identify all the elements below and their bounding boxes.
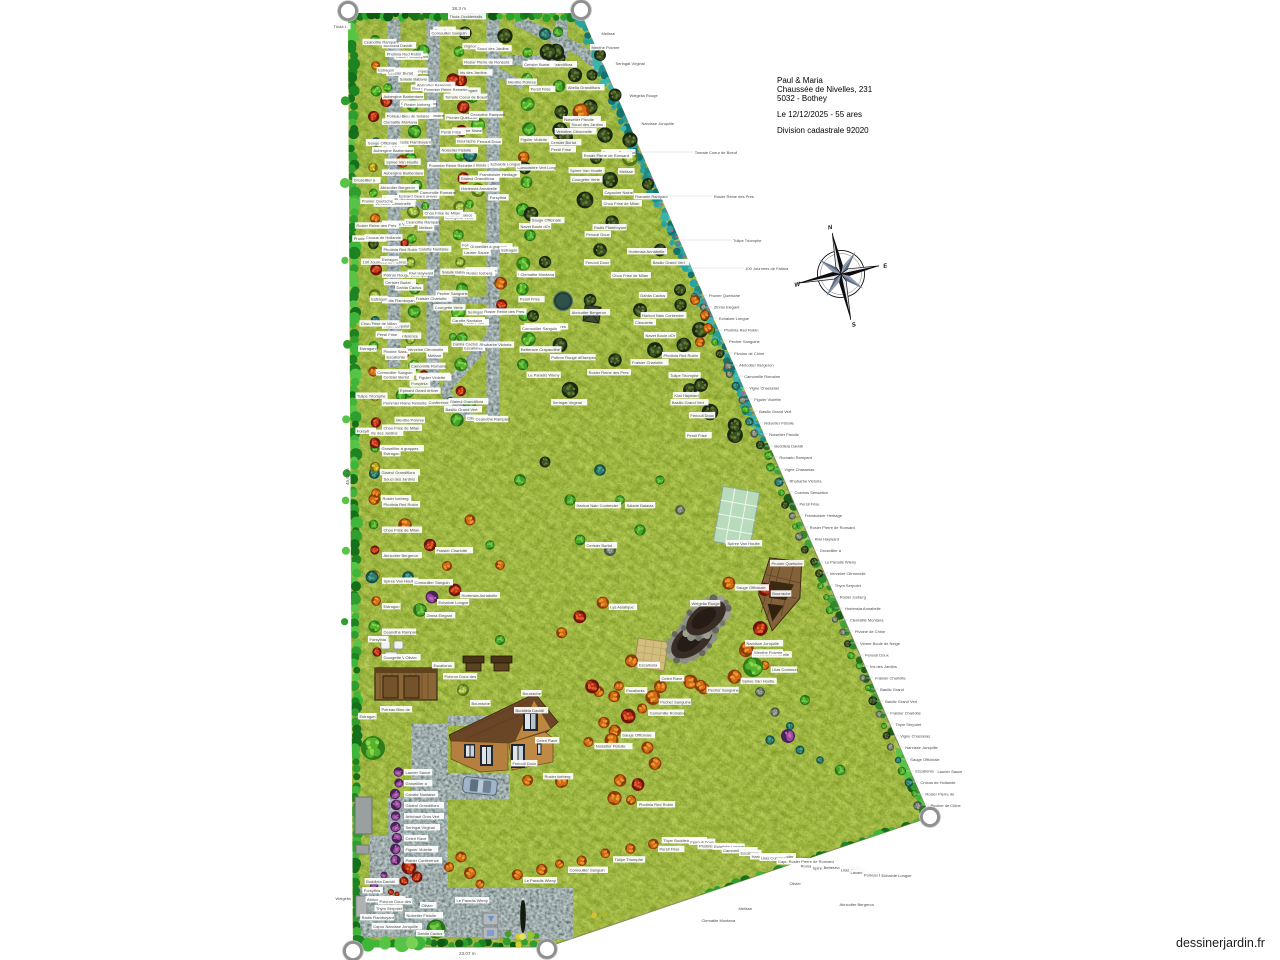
svg-text:Cornouiller Sanguin: Cornouiller Sanguin xyxy=(415,580,450,585)
svg-text:Fraisier Charlotte: Fraisier Charlotte xyxy=(437,548,468,553)
svg-text:Photinia Red Robin: Photinia Red Robin xyxy=(724,328,758,333)
svg-text:Abricotier Bergeron: Abricotier Bergeron xyxy=(384,553,418,558)
svg-text:Courgette Verte: Courgette Verte xyxy=(572,177,601,182)
svg-text:N: N xyxy=(828,225,834,232)
svg-text:Fraisier Charlotte: Fraisier Charlotte xyxy=(890,710,921,715)
svg-text:Capucine Naine: Capucine Naine xyxy=(605,190,634,195)
svg-text:Le Paradis Wieny: Le Paradis Wieny xyxy=(525,878,556,883)
svg-text:Rosier Reine des Pres: Rosier Reine des Pres xyxy=(589,370,629,375)
svg-text:Basilic Grand Vert: Basilic Grand Vert xyxy=(653,260,686,265)
svg-text:Spiree Van Houtte: Spiree Van Houtte xyxy=(742,679,775,684)
svg-text:Ceanothe Rampant: Ceanothe Rampant xyxy=(476,417,512,422)
svg-text:Radis Flamboyant: Radis Flamboyant xyxy=(362,915,395,920)
svg-text:Rosier Pierre de: Rosier Pierre de xyxy=(925,792,955,797)
svg-text:Ceanothe Rampant: Ceanothe Rampant xyxy=(470,112,506,117)
svg-text:Photinia Red Robin: Photinia Red Robin xyxy=(384,247,418,252)
svg-text:Dahlia Cactus: Dahlia Cactus xyxy=(418,931,443,936)
svg-text:Prunier Quetsche: Prunier Quetsche xyxy=(709,293,741,298)
svg-text:100 Journees de Fatima: 100 Journees de Fatima xyxy=(745,266,789,271)
svg-text:Laurier Sauce: Laurier Sauce xyxy=(464,250,490,255)
svg-text:Weigelia: Weigelia xyxy=(336,896,352,901)
svg-text:Ceanothe Rampant: Ceanothe Rampant xyxy=(406,220,442,225)
svg-text:Prunier Quetsche: Prunier Quetsche xyxy=(772,561,804,566)
svg-text:Menthe Poivree: Menthe Poivree xyxy=(396,418,425,423)
svg-text:Pivoine de Chine: Pivoine de Chine xyxy=(734,351,765,356)
svg-text:Forsythia: Forsythia xyxy=(490,195,507,200)
svg-text:Aubergine Barbentane: Aubergine Barbentane xyxy=(384,94,425,99)
svg-text:Rosier Pierre de Ronsard: Rosier Pierre de Ronsard xyxy=(584,153,629,158)
svg-text:Photinia Red Robin: Photinia Red Robin xyxy=(387,52,421,57)
svg-text:Buddleia Davidii: Buddleia Davidii xyxy=(516,708,545,713)
svg-text:Persil Frise: Persil Frise xyxy=(551,147,572,152)
svg-text:Cerisier Burlat: Cerisier Burlat xyxy=(551,140,577,145)
svg-text:Chou Frise de Milan: Chou Frise de Milan xyxy=(612,273,648,278)
svg-text:Melisse: Melisse xyxy=(602,31,616,36)
svg-text:Sauge Officinale: Sauge Officinale xyxy=(532,218,562,223)
svg-text:Basilic Grand Vert: Basilic Grand Vert xyxy=(446,407,479,412)
svg-text:23,07 m: 23,07 m xyxy=(459,951,476,956)
svg-text:Kiwi Hayward: Kiwi Hayward xyxy=(674,393,698,398)
svg-text:Basilic Grand Vert: Basilic Grand Vert xyxy=(759,409,792,414)
svg-text:Viorne Boule de Neige: Viorne Boule de Neige xyxy=(860,641,901,646)
svg-text:Tulipe Triomphe: Tulipe Triomphe xyxy=(670,373,699,378)
svg-text:Echalote Longue: Echalote Longue xyxy=(491,162,522,167)
svg-text:Abricotier Bergeron: Abricotier Bergeron xyxy=(840,902,874,907)
svg-text:Rosier Reine des Pres: Rosier Reine des Pres xyxy=(356,223,396,228)
svg-text:Camomille Romaine: Camomille Romaine xyxy=(411,364,448,369)
svg-text:Echalote Longue: Echalote Longue xyxy=(882,873,913,878)
svg-text:Estragon: Estragon xyxy=(382,257,398,262)
svg-text:Rhubarbe Victoria: Rhubarbe Victoria xyxy=(790,478,823,483)
svg-text:Carotte Nantaise: Carotte Nantaise xyxy=(452,318,483,323)
svg-text:Courgette Verte: Courgette Verte xyxy=(435,305,464,310)
svg-text:Concombre Vert Long: Concombre Vert Long xyxy=(517,165,556,170)
svg-text:Basilic Grand Vert: Basilic Grand Vert xyxy=(885,699,918,704)
svg-text:Groseillier a: Groseillier a xyxy=(820,548,842,553)
svg-text:S: S xyxy=(851,322,856,329)
svg-text:Sauge Officinale: Sauge Officinale xyxy=(622,733,652,738)
svg-text:Melisse: Melisse xyxy=(620,169,634,174)
svg-text:Tulipe Triomphe: Tulipe Triomphe xyxy=(615,857,644,862)
svg-text:Tomate Coeur de Boeuf: Tomate Coeur de Boeuf xyxy=(695,150,738,155)
svg-text:Clematite Montana: Clematite Montana xyxy=(850,618,884,623)
svg-text:Camomille Romaine: Camomille Romaine xyxy=(744,374,781,379)
svg-text:Camomille Romaine: Camomille Romaine xyxy=(650,710,687,715)
svg-text:Glaieul Grandiflora: Glaieul Grandiflora xyxy=(450,399,484,404)
svg-text:Cerisier Burlat: Cerisier Burlat xyxy=(587,543,613,548)
svg-text:Noisetier Fistulie: Noisetier Fistulie xyxy=(442,148,472,153)
svg-text:Prunier Quetsche: Prunier Quetsche xyxy=(362,199,394,204)
svg-text:Menthe Poivree: Menthe Poivree xyxy=(754,650,783,655)
svg-text:Persil Frise: Persil Frise xyxy=(800,502,821,507)
svg-text:Rosier Iceberg: Rosier Iceberg xyxy=(840,594,866,599)
svg-text:Tomate Coeur de Boeuf: Tomate Coeur de Boeuf xyxy=(445,94,488,99)
svg-text:Clematite Montana: Clematite Montana xyxy=(521,272,555,277)
svg-text:Seringat Virginal: Seringat Virginal xyxy=(616,61,645,66)
svg-text:Abelia Grandiflora: Abelia Grandiflora xyxy=(568,85,601,90)
svg-text:Figuier Violette: Figuier Violette xyxy=(419,375,446,380)
svg-text:Persil Frise: Persil Frise xyxy=(377,332,398,337)
svg-text:Salade Batavia: Salade Batavia xyxy=(400,77,428,82)
svg-text:Radis Flamboyant: Radis Flamboyant xyxy=(594,225,627,230)
svg-text:E: E xyxy=(883,263,889,270)
svg-text:Photinia Red Robin: Photinia Red Robin xyxy=(664,353,698,358)
svg-text:Noisetier Fistulie: Noisetier Fistulie xyxy=(769,432,799,437)
svg-text:Noisetier Fistulie: Noisetier Fistulie xyxy=(764,420,794,425)
svg-text:Pecher Sanguine: Pecher Sanguine xyxy=(660,699,691,704)
svg-text:Escallonia: Escallonia xyxy=(434,663,453,668)
svg-text:Olivier: Olivier xyxy=(422,903,434,908)
svg-text:Aubergine Barbentane: Aubergine Barbentane xyxy=(384,170,425,175)
svg-text:Abricotier Bergeron: Abricotier Bergeron xyxy=(572,310,606,315)
svg-text:Cornouiller Sanguin: Cornouiller Sanguin xyxy=(432,30,467,35)
svg-text:Buddleia Davidii: Buddleia Davidii xyxy=(774,444,803,449)
svg-text:Sauge Officinale: Sauge Officinale xyxy=(368,141,398,146)
svg-text:Hortensia Annabelle: Hortensia Annabelle xyxy=(462,593,499,598)
svg-text:Salade Batavia: Salade Batavia xyxy=(627,503,655,508)
svg-text:Glaieul Grandiflora: Glaieul Grandiflora xyxy=(382,470,416,475)
svg-text:Pommier Reine Reinette: Pommier Reine Reinette xyxy=(383,401,427,406)
svg-text:Laurier Sauce: Laurier Sauce xyxy=(406,770,432,775)
svg-text:Ceanothe Rampant: Ceanothe Rampant xyxy=(384,629,420,634)
svg-text:Persil Frise: Persil Frise xyxy=(660,847,681,852)
svg-text:Persil Frise: Persil Frise xyxy=(520,297,541,302)
svg-text:Pivoine de Chine: Pivoine de Chine xyxy=(931,803,962,808)
svg-text:Cornouiller Sanguin: Cornouiller Sanguin xyxy=(570,867,605,872)
svg-text:Estragon: Estragon xyxy=(360,346,376,351)
svg-text:Verveine Citronnelle: Verveine Citronnelle xyxy=(830,571,867,576)
svg-text:Figuier Violette: Figuier Violette xyxy=(406,847,433,852)
svg-text:Olivier: Olivier xyxy=(406,655,418,660)
svg-text:Persil Frise: Persil Frise xyxy=(531,87,552,92)
svg-text:Le Paradis Wieny: Le Paradis Wieny xyxy=(825,560,856,565)
svg-text:Ceanothe Rampant: Ceanothe Rampant xyxy=(364,40,400,45)
svg-text:Groseillier a: Groseillier a xyxy=(406,781,428,786)
svg-text:Menthe Poivree: Menthe Poivree xyxy=(592,45,621,50)
svg-text:Epinard Geant dHiver: Epinard Geant dHiver xyxy=(400,388,439,393)
svg-text:Carotte Nantaise: Carotte Nantaise xyxy=(419,247,450,252)
svg-text:Estragon: Estragon xyxy=(360,714,376,719)
svg-text:Iris des Jardins: Iris des Jardins xyxy=(371,430,398,435)
svg-text:Echalote Longue: Echalote Longue xyxy=(719,316,750,321)
svg-text:Narcisse Jonquille: Narcisse Jonquille xyxy=(905,745,938,750)
svg-text:Spiree Van Houtte: Spiree Van Houtte xyxy=(570,168,603,173)
svg-text:Dahlia Cactus: Dahlia Cactus xyxy=(453,342,478,347)
svg-text:dessinerjardin.fr: dessinerjardin.fr xyxy=(1176,936,1265,950)
svg-text:Basilic Grand: Basilic Grand xyxy=(880,687,904,692)
svg-text:Camomille Romaine: Camomille Romaine xyxy=(420,190,457,195)
svg-text:Estragon: Estragon xyxy=(501,247,517,252)
svg-text:Melisse: Melisse xyxy=(739,906,753,911)
svg-text:Thym Serpolet: Thym Serpolet xyxy=(895,722,922,727)
svg-text:Souci des Jardins: Souci des Jardins xyxy=(477,46,509,51)
svg-text:Seringat Virginal: Seringat Virginal xyxy=(553,400,582,405)
svg-text:Chou Frise de Milan: Chou Frise de Milan xyxy=(604,201,640,206)
svg-text:Hortensia Annabelle: Hortensia Annabelle xyxy=(845,606,882,611)
svg-text:Tulipe Triomphe: Tulipe Triomphe xyxy=(357,393,386,398)
svg-text:Photinia Red Robin: Photinia Red Robin xyxy=(384,502,418,507)
svg-text:Cornouiller Sanguin: Cornouiller Sanguin xyxy=(377,370,412,375)
svg-text:Seringat Virginal: Seringat Virginal xyxy=(406,825,435,830)
svg-text:Rosier Iceberg: Rosier Iceberg xyxy=(466,271,492,276)
svg-text:Verveine Citronnelle: Verveine Citronnelle xyxy=(556,129,593,134)
svg-text:Souci des Jardins: Souci des Jardins xyxy=(384,476,416,481)
svg-text:Groseillier a: Groseillier a xyxy=(354,178,376,183)
svg-text:Noisetier Fistulie: Noisetier Fistulie xyxy=(596,744,626,749)
svg-text:Crocus de Hollande: Crocus de Hollande xyxy=(366,235,402,240)
svg-text:Celeri Rave: Celeri Rave xyxy=(662,676,684,681)
svg-text:Pecher Sanguine: Pecher Sanguine xyxy=(708,688,739,693)
svg-text:Thuia L.: Thuia L. xyxy=(334,24,348,29)
svg-text:Verveine Citronnelle: Verveine Citronnelle xyxy=(408,347,445,352)
svg-text:Fenouil Doux: Fenouil Doux xyxy=(586,232,610,237)
svg-text:Chou Frise de Milan: Chou Frise de Milan xyxy=(361,321,397,326)
svg-text:Carotte Nantaise: Carotte Nantaise xyxy=(406,792,437,797)
svg-text:Aubergine Barbentane: Aubergine Barbentane xyxy=(374,148,415,153)
svg-text:Rosier Iceberg: Rosier Iceberg xyxy=(404,102,430,107)
svg-text:Estragon: Estragon xyxy=(384,604,400,609)
svg-text:Cosmos Sensation: Cosmos Sensation xyxy=(795,490,829,495)
svg-text:Navet Boule dOr: Navet Boule dOr xyxy=(521,224,551,229)
svg-text:Iris des Jardins: Iris des Jardins xyxy=(460,70,487,75)
svg-text:Rosier Pierre de Ronsard: Rosier Pierre de Ronsard xyxy=(810,525,855,530)
svg-text:Narcisse Jonquille: Narcisse Jonquille xyxy=(386,924,419,929)
svg-text:Melisse: Melisse xyxy=(419,225,433,230)
svg-text:Photinia Red Robin: Photinia Red Robin xyxy=(639,802,673,807)
svg-text:Thym Serpolet: Thym Serpolet xyxy=(835,583,862,588)
svg-text:Poireau Bleu de: Poireau Bleu de xyxy=(382,707,411,712)
svg-text:Pivoine de Chine: Pivoine de Chine xyxy=(855,629,886,634)
svg-text:Lilas Commun: Lilas Commun xyxy=(772,667,798,672)
svg-text:Echalote Longue: Echalote Longue xyxy=(439,600,470,605)
svg-text:Melisse: Melisse xyxy=(428,353,442,358)
svg-text:Ciboulette: Ciboulette xyxy=(635,320,654,325)
svg-text:Kiwi Hayward: Kiwi Hayward xyxy=(409,270,433,275)
svg-text:Sauge Officinale: Sauge Officinale xyxy=(910,757,940,762)
svg-text:Spiree Van Houtte: Spiree Van Houtte xyxy=(386,159,419,164)
svg-text:Dahlia Cactus: Dahlia Cactus xyxy=(397,285,422,290)
svg-text:Cerisier Burlat: Cerisier Burlat xyxy=(524,62,550,67)
svg-text:Noisetier Fistulie: Noisetier Fistulie xyxy=(407,913,437,918)
svg-text:Chou Frise de Milan: Chou Frise de Milan xyxy=(425,211,461,216)
svg-text:Souci des Jardins: Souci des Jardins xyxy=(572,122,604,127)
svg-text:Le 12/12/2025 - 55 ares: Le 12/12/2025 - 55 ares xyxy=(777,110,862,119)
svg-text:Forsythia: Forsythia xyxy=(364,888,381,893)
svg-text:Laurier Sauce: Laurier Sauce xyxy=(938,769,964,774)
svg-text:Estragon: Estragon xyxy=(371,297,387,302)
svg-text:Lys Asiatique: Lys Asiatique xyxy=(610,605,634,610)
svg-text:Fenouil Doux: Fenouil Doux xyxy=(586,260,610,265)
svg-text:Hortensia Annabelle: Hortensia Annabelle xyxy=(461,186,498,191)
svg-text:Bourrache: Bourrache xyxy=(772,591,791,596)
svg-text:Sauge Officinale: Sauge Officinale xyxy=(736,585,766,590)
svg-text:Pecher Sanguine: Pecher Sanguine xyxy=(437,291,468,296)
svg-text:Vigne Chasselas: Vigne Chasselas xyxy=(749,386,779,391)
svg-text:Rosier Pierre de Ronsard: Rosier Pierre de Ronsard xyxy=(464,59,509,64)
svg-text:Paul & Maria: Paul & Maria xyxy=(777,76,823,85)
svg-text:Estragon: Estragon xyxy=(384,451,400,456)
svg-text:Forsythia: Forsythia xyxy=(411,381,428,386)
svg-text:Cerisier Burlat: Cerisier Burlat xyxy=(385,280,411,285)
svg-text:Vigne Chasselas: Vigne Chasselas xyxy=(900,734,930,739)
svg-text:Weigelia Rouge: Weigelia Rouge xyxy=(630,93,659,98)
svg-text:Artichaut Gros Vert: Artichaut Gros Vert xyxy=(406,814,441,819)
svg-text:Clematite Montana: Clematite Montana xyxy=(384,119,418,124)
svg-text:Rosier Iceberg: Rosier Iceberg xyxy=(545,774,571,779)
svg-text:Poivron Doux des: Poivron Doux des xyxy=(445,674,477,679)
svg-text:Potiron Rouge dEtampes: Potiron Rouge dEtampes xyxy=(551,355,596,360)
svg-text:38,3 m: 38,3 m xyxy=(452,6,466,11)
svg-text:Pommier Reine Reinette: Pommier Reine Reinette xyxy=(424,87,468,92)
svg-text:Glaieul Grandiflora: Glaieul Grandiflora xyxy=(406,803,440,808)
svg-text:Kiwi Hayward: Kiwi Hayward xyxy=(815,536,839,541)
svg-text:Rhubarbe Victoria: Rhubarbe Victoria xyxy=(480,342,513,347)
svg-text:Fraisier Charlotte: Fraisier Charlotte xyxy=(875,676,906,681)
svg-text:Navet Boule dOr: Navet Boule dOr xyxy=(646,333,676,338)
svg-text:Thym Serpolet: Thym Serpolet xyxy=(376,906,403,911)
svg-text:Poireau Bleu de Solaise: Poireau Bleu de Solaise xyxy=(387,113,430,118)
svg-text:Fenouil Doux: Fenouil Doux xyxy=(513,761,537,766)
svg-text:Poirier Conference: Poirier Conference xyxy=(406,858,440,863)
svg-text:5032 - Bothey: 5032 - Bothey xyxy=(777,94,827,103)
svg-text:Bourrache: Bourrache xyxy=(523,691,542,696)
svg-text:Romarin Rampant: Romarin Rampant xyxy=(779,455,812,460)
svg-text:Radis Flamboyant: Radis Flamboyant xyxy=(399,139,432,144)
svg-text:Narcisse Jonquille: Narcisse Jonquille xyxy=(747,641,780,646)
svg-text:Abricotier Bergeron: Abricotier Bergeron xyxy=(739,362,773,367)
svg-text:Zinnia Elegant: Zinnia Elegant xyxy=(427,613,453,618)
svg-text:Division cadastrale 92020: Division cadastrale 92020 xyxy=(777,126,869,135)
svg-text:Fraisier Charlotte: Fraisier Charlotte xyxy=(416,296,447,301)
svg-text:Persil Frise: Persil Frise xyxy=(441,130,462,135)
svg-text:Spiree Van Houtte: Spiree Van Houtte xyxy=(728,541,761,546)
svg-text:Narcisse Jonquille: Narcisse Jonquille xyxy=(642,121,675,126)
svg-text:Vigne Chasselas: Vigne Chasselas xyxy=(784,467,814,472)
svg-text:Groseillier a grappes: Groseillier a grappes xyxy=(382,446,419,451)
svg-text:Le Paradis Wieny: Le Paradis Wieny xyxy=(528,372,559,377)
svg-text:Olivier: Olivier xyxy=(790,881,802,886)
svg-text:Forsythia: Forsythia xyxy=(370,637,387,642)
svg-text:Framboisier Heritage: Framboisier Heritage xyxy=(480,172,518,177)
svg-text:Dahlia Cactus: Dahlia Cactus xyxy=(640,293,665,298)
svg-text:Basilic Grand Vert: Basilic Grand Vert xyxy=(672,400,705,405)
svg-text:Weigelia Rouge: Weigelia Rouge xyxy=(692,601,721,606)
svg-text:Menthe Poivree: Menthe Poivree xyxy=(508,79,537,84)
svg-text:Rosier Reine des Pres: Rosier Reine des Pres xyxy=(714,194,754,199)
svg-text:Framboisier Heritage: Framboisier Heritage xyxy=(805,513,843,518)
svg-text:Tulipe Triomphe: Tulipe Triomphe xyxy=(733,238,762,243)
svg-text:Escallonia: Escallonia xyxy=(915,768,934,773)
svg-text:Hortensia Annabelle: Hortensia Annabelle xyxy=(629,249,666,254)
svg-text:Fraisier Charlotte: Fraisier Charlotte xyxy=(632,360,663,365)
svg-text:Fenouil Doux: Fenouil Doux xyxy=(690,413,714,418)
svg-text:Escallonia: Escallonia xyxy=(387,354,406,359)
svg-text:Bourrache: Bourrache xyxy=(457,139,476,144)
svg-text:Iris des Jardins: Iris des Jardins xyxy=(870,664,897,669)
svg-text:Escallonia: Escallonia xyxy=(626,688,645,693)
svg-text:Bourrache: Bourrache xyxy=(472,701,491,706)
svg-text:Crocus de Hollande: Crocus de Hollande xyxy=(920,780,956,785)
svg-text:Pivoine Sarah: Pivoine Sarah xyxy=(384,349,409,354)
svg-text:Spiree Van Houtte: Spiree Van Houtte xyxy=(384,578,417,583)
svg-text:Fenouil Doux: Fenouil Doux xyxy=(477,139,501,144)
svg-text:Celeri Rave: Celeri Rave xyxy=(537,738,559,743)
svg-text:Thuia Occidentalis: Thuia Occidentalis xyxy=(450,14,483,19)
svg-text:Poivron Doux des: Poivron Doux des xyxy=(380,899,412,904)
svg-text:Buddleia Davidii: Buddleia Davidii xyxy=(366,879,395,884)
svg-text:Estragon: Estragon xyxy=(378,68,394,73)
svg-text:Pecher Sanguine: Pecher Sanguine xyxy=(729,339,760,344)
svg-text:Escallonia: Escallonia xyxy=(639,663,658,668)
svg-text:Haricot Nain Contender: Haricot Nain Contender xyxy=(642,313,684,318)
svg-text:Chaussée de Nivelles, 231: Chaussée de Nivelles, 231 xyxy=(777,85,873,94)
svg-text:Clematite Montana: Clematite Montana xyxy=(702,918,736,923)
svg-text:Haricot Nain Contender: Haricot Nain Contender xyxy=(577,503,619,508)
svg-text:Zinnia Elegant: Zinnia Elegant xyxy=(714,304,740,309)
svg-text:Pommier Reine Reinette: Pommier Reine Reinette xyxy=(429,163,473,168)
svg-text:Figuier Violette: Figuier Violette xyxy=(754,397,781,402)
svg-text:Persil Frise: Persil Frise xyxy=(687,433,708,438)
svg-text:Chou Frise de Milan: Chou Frise de Milan xyxy=(384,527,420,532)
svg-text:Rosier Iceberg: Rosier Iceberg xyxy=(383,496,409,501)
svg-text:Abricotier Bergeron: Abricotier Bergeron xyxy=(380,185,414,190)
svg-text:Celeri Rave: Celeri Rave xyxy=(406,836,428,841)
svg-text:Cornouiller Sanguin: Cornouiller Sanguin xyxy=(522,326,557,331)
svg-text:45,69 m: 45,69 m xyxy=(345,468,350,485)
svg-text:Radis Flamboyant: Radis Flamboyant xyxy=(384,298,417,303)
svg-text:Rosier Reine des Pres: Rosier Reine des Pres xyxy=(484,309,524,314)
svg-text:Le Paradis Wieny: Le Paradis Wieny xyxy=(457,898,488,903)
svg-text:Figuier Violette: Figuier Violette xyxy=(521,137,548,142)
svg-text:Betterave Crapaudine: Betterave Crapaudine xyxy=(521,347,561,352)
svg-text:Fenouil Doux: Fenouil Doux xyxy=(865,652,889,657)
